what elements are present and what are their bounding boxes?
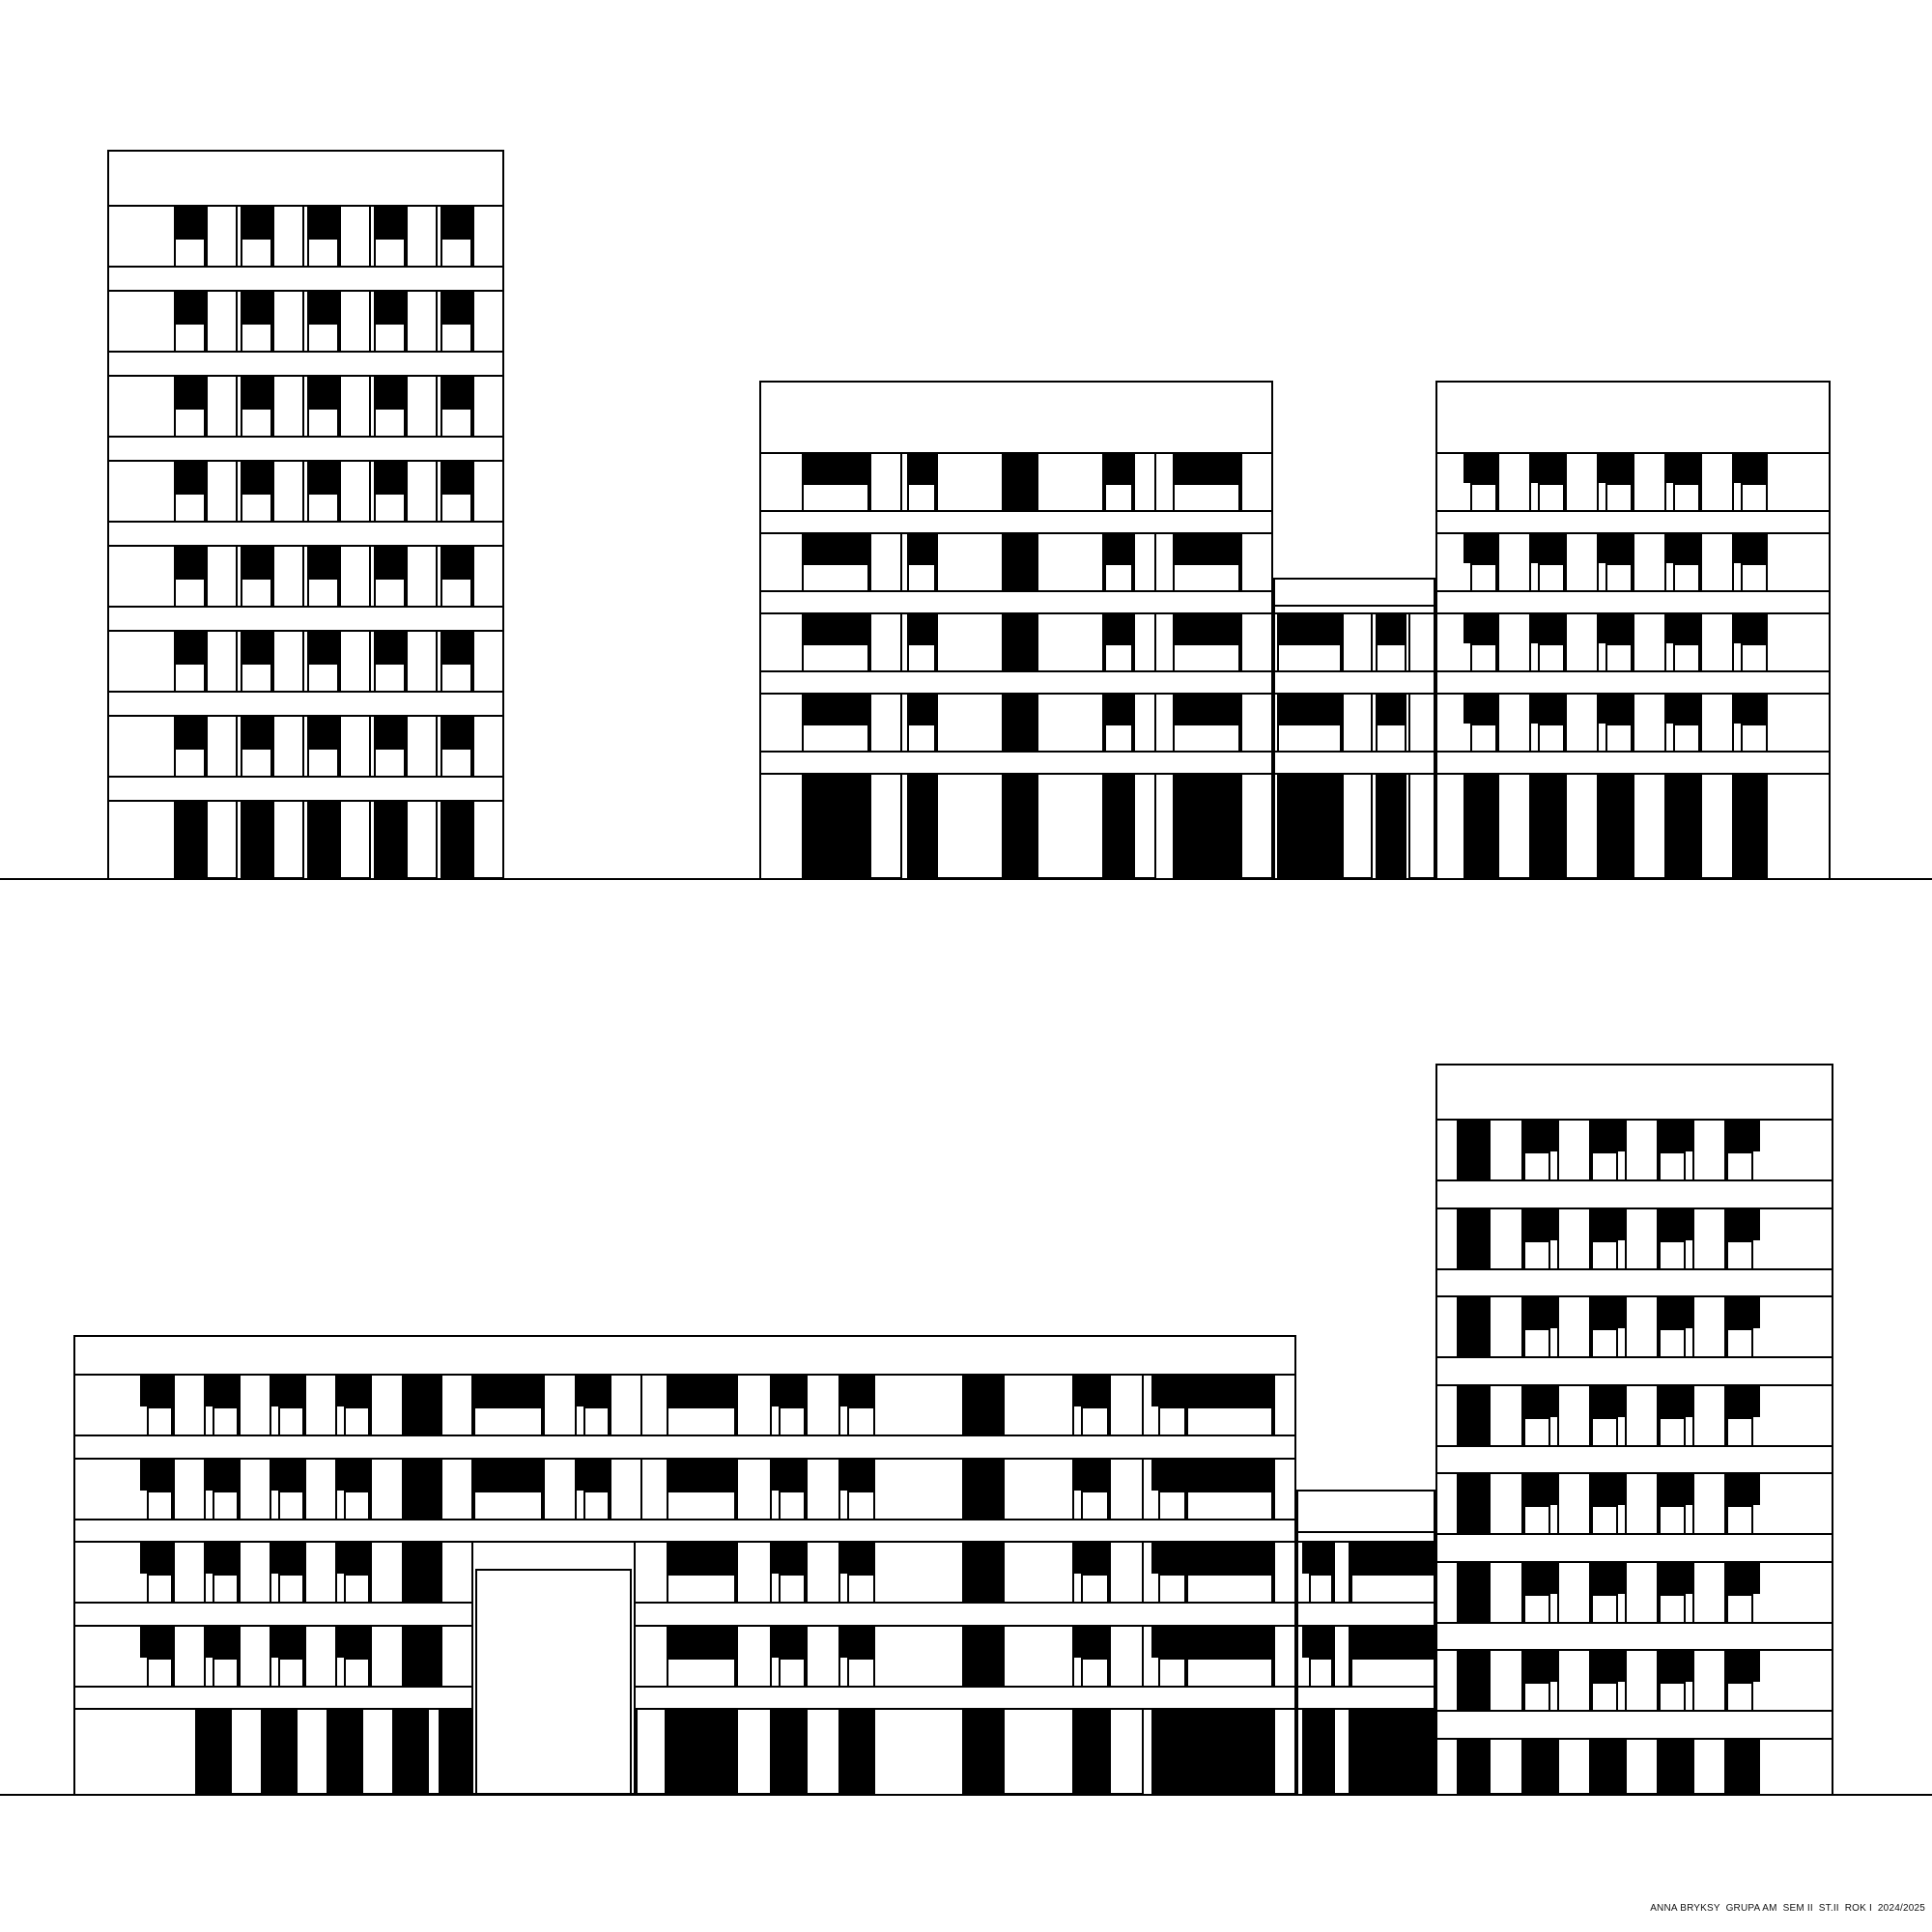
window-pane: [1557, 1472, 1591, 1535]
window-pane: [1109, 1374, 1144, 1436]
ground-floor-dark-opening: [1734, 773, 1768, 879]
window-pane: [610, 1374, 642, 1436]
ground-floor-glazing: [1565, 773, 1599, 879]
upper-middle-block-elevation: [759, 381, 1273, 879]
window-lower-sash: [147, 1574, 173, 1604]
ground-floor-glazing: [1557, 1738, 1591, 1795]
window-lower-sash: [667, 1491, 736, 1520]
ground-floor-dark-opening: [1173, 773, 1240, 879]
window-lower-sash: [1173, 483, 1240, 512]
window-lower-sash: [802, 643, 869, 672]
window-lower-sash: [278, 1574, 304, 1604]
window-open-upper-sash: [1591, 1384, 1625, 1417]
ground-floor-glazing: [1109, 1708, 1144, 1795]
ground-floor-glazing: [1633, 773, 1666, 879]
window-open-upper-sash: [1726, 1295, 1760, 1328]
window-pane: [1625, 1384, 1659, 1447]
window-open-upper-sash: [1151, 1458, 1186, 1491]
window-lower-sash: [1741, 483, 1768, 512]
window-pane: [1692, 1561, 1726, 1624]
window-pane: [1273, 1625, 1296, 1688]
window-pane: [1109, 1541, 1144, 1604]
ground-floor-glazing: [736, 1708, 772, 1795]
window-lower-sash: [241, 408, 272, 438]
window-lower-sash: [1470, 643, 1497, 672]
window-open-upper-sash: [1726, 1384, 1760, 1417]
full-height-dark-strip: [1004, 612, 1037, 672]
ground-floor-dark-opening: [840, 1708, 875, 1795]
window-lower-sash: [847, 1491, 875, 1520]
window-pane: [1133, 612, 1156, 672]
window-open-upper-sash: [1376, 612, 1406, 643]
window-open-upper-sash: [1666, 532, 1700, 563]
window-open-upper-sash: [1659, 1561, 1692, 1594]
window-open-upper-sash: [1531, 532, 1565, 563]
window-open-upper-sash: [772, 1374, 806, 1406]
window-lower-sash: [1741, 724, 1768, 753]
facade-parapet-line: [1296, 1490, 1435, 1492]
window-lower-sash: [344, 1574, 370, 1604]
window-lower-sash: [1376, 643, 1406, 672]
full-height-dark-strip: [962, 1625, 1003, 1688]
facade-left-edge: [1435, 1064, 1437, 1795]
window-lower-sash: [278, 1406, 304, 1436]
window-open-upper-sash: [1659, 1384, 1692, 1417]
window-pane: [406, 545, 438, 608]
window-lower-sash: [1104, 724, 1133, 753]
window-open-upper-sash: [1591, 1119, 1625, 1151]
window-pane: [1037, 452, 1104, 512]
full-height-dark-strip: [1457, 1649, 1489, 1712]
window-pane: [1565, 612, 1599, 672]
window-pane: [272, 545, 304, 608]
window-pane: [1625, 1649, 1659, 1712]
window-lower-sash: [1605, 483, 1633, 512]
window-open-upper-sash: [1666, 452, 1700, 483]
window-pane: [1333, 1541, 1350, 1604]
window-lower-sash: [213, 1491, 239, 1520]
window-lower-sash: [1538, 643, 1565, 672]
window-open-upper-sash: [307, 375, 339, 408]
window-lower-sash: [1376, 724, 1406, 753]
ground-floor-dark-opening: [802, 773, 869, 879]
window-lower-sash: [1186, 1574, 1273, 1604]
facade-right-edge: [1832, 1064, 1833, 1795]
full-height-dark-strip: [404, 1541, 440, 1604]
window-pane: [1565, 693, 1599, 753]
window-open-upper-sash: [1173, 612, 1240, 643]
window-lower-sash: [344, 1658, 370, 1688]
lower-elevation-ground-line: [0, 1794, 1932, 1796]
window-open-upper-sash: [1302, 1541, 1333, 1574]
ground-floor-dark-opening: [1523, 1738, 1557, 1795]
window-pane: [406, 630, 438, 693]
ground-floor-dark-opening: [1531, 773, 1565, 879]
window-pane: [806, 1374, 840, 1436]
window-lower-sash: [374, 663, 406, 693]
ground-floor-dark-opening: [1151, 1708, 1186, 1795]
window-open-upper-sash: [802, 532, 869, 563]
window-open-upper-sash: [1523, 1472, 1557, 1505]
facade-parapet-line: [1435, 1064, 1833, 1065]
window-pane: [869, 693, 902, 753]
window-open-upper-sash: [1523, 1295, 1557, 1328]
window-lower-sash: [1591, 1505, 1618, 1535]
window-pane: [472, 460, 504, 523]
window-pane: [472, 545, 504, 608]
full-height-dark-strip: [1457, 1295, 1489, 1358]
window-lower-sash: [847, 1574, 875, 1604]
window-pane: [339, 375, 371, 438]
window-lower-sash: [1081, 1491, 1109, 1520]
window-lower-sash: [440, 578, 472, 608]
window-open-upper-sash: [1104, 452, 1133, 483]
window-pane: [272, 630, 304, 693]
window-lower-sash: [440, 408, 472, 438]
window-lower-sash: [1186, 1406, 1273, 1436]
ground-floor-glazing: [1240, 773, 1273, 879]
ground-floor-dark-opening: [667, 1708, 736, 1795]
upper-elevation-ground-line: [0, 878, 1932, 880]
window-pane: [1497, 452, 1531, 512]
window-pane: [936, 612, 1004, 672]
window-lower-sash: [1591, 1328, 1618, 1358]
window-open-upper-sash: [374, 205, 406, 238]
window-open-upper-sash: [374, 630, 406, 663]
window-open-upper-sash: [440, 290, 472, 323]
window-open-upper-sash: [1591, 1472, 1625, 1505]
facade-band-line: [1273, 605, 1435, 607]
window-open-upper-sash: [907, 452, 936, 483]
window-pane: [206, 545, 238, 608]
window-open-upper-sash: [337, 1458, 370, 1491]
window-open-upper-sash: [1734, 612, 1768, 643]
window-pane: [339, 715, 371, 778]
window-lower-sash: [1673, 643, 1700, 672]
window-open-upper-sash: [840, 1625, 875, 1658]
window-open-upper-sash: [1173, 532, 1240, 563]
window-lower-sash: [583, 1406, 610, 1436]
window-lower-sash: [1081, 1574, 1109, 1604]
window-pane: [472, 375, 504, 438]
window-open-upper-sash: [1463, 612, 1497, 643]
window-open-upper-sash: [174, 630, 206, 663]
window-open-upper-sash: [1599, 612, 1633, 643]
window-lower-sash: [241, 323, 272, 353]
window-pane: [239, 1458, 271, 1520]
title-block-caption: ANNA BRYKSY GRUPA AM SEM II ST.II ROK I …: [1650, 1903, 1925, 1914]
window-pane: [1557, 1561, 1591, 1624]
window-open-upper-sash: [206, 1541, 239, 1574]
upper-right-block-elevation: [1435, 381, 1831, 879]
window-lower-sash: [241, 748, 272, 778]
ground-floor-dark-opening: [907, 773, 936, 879]
window-lower-sash: [374, 238, 406, 268]
window-lower-sash: [1538, 563, 1565, 592]
window-lower-sash: [213, 1574, 239, 1604]
window-lower-sash: [1186, 1491, 1273, 1520]
window-open-upper-sash: [307, 460, 339, 493]
ground-floor-glazing: [339, 800, 371, 879]
window-lower-sash: [1591, 1417, 1618, 1447]
window-pane: [1133, 693, 1156, 753]
ground-floor-dark-opening: [394, 1708, 427, 1795]
window-lower-sash: [847, 1406, 875, 1436]
window-open-upper-sash: [1173, 452, 1240, 483]
window-pane: [406, 715, 438, 778]
ground-floor-glazing: [1408, 773, 1435, 879]
window-lower-sash: [1309, 1658, 1333, 1688]
window-lower-sash: [1523, 1505, 1550, 1535]
window-open-upper-sash: [440, 205, 472, 238]
window-lower-sash: [1523, 1417, 1550, 1447]
window-pane: [440, 1458, 473, 1520]
ground-floor-dark-opening: [1666, 773, 1700, 879]
window-lower-sash: [374, 578, 406, 608]
facade-parapet-line: [107, 150, 504, 152]
ground-floor-glazing: [1037, 773, 1104, 879]
window-open-upper-sash: [473, 1374, 543, 1406]
window-open-upper-sash: [271, 1625, 304, 1658]
window-lower-sash: [1659, 1328, 1686, 1358]
window-open-upper-sash: [1599, 452, 1633, 483]
window-pane: [1240, 452, 1273, 512]
window-pane: [1633, 532, 1666, 592]
window-open-upper-sash: [907, 532, 936, 563]
window-pane: [440, 1541, 473, 1604]
window-lower-sash: [1350, 1574, 1435, 1604]
window-pane: [370, 1374, 404, 1436]
window-lower-sash: [1659, 1682, 1686, 1712]
facade-parapet-line: [1435, 381, 1831, 383]
window-pane: [206, 460, 238, 523]
window-lower-sash: [779, 1491, 806, 1520]
window-open-upper-sash: [307, 290, 339, 323]
window-pane: [1003, 1374, 1074, 1436]
window-open-upper-sash: [577, 1458, 610, 1491]
ground-floor-glazing: [427, 1708, 440, 1795]
window-pane: [173, 1541, 206, 1604]
window-open-upper-sash: [1734, 452, 1768, 483]
window-open-upper-sash: [337, 1374, 370, 1406]
ground-floor-dark-opening: [1591, 1738, 1625, 1795]
facade-parapet-line: [1273, 578, 1435, 580]
ground-floor-dark-opening: [1659, 1738, 1692, 1795]
upper-left-tower-elevation: [107, 150, 504, 879]
window-pane: [472, 630, 504, 693]
window-open-upper-sash: [241, 630, 272, 663]
full-height-dark-strip: [962, 1541, 1003, 1604]
facade-left-edge: [759, 381, 761, 879]
window-pane: [206, 630, 238, 693]
window-pane: [339, 545, 371, 608]
window-pane: [1497, 693, 1531, 753]
window-pane: [206, 205, 238, 268]
window-lower-sash: [907, 483, 936, 512]
window-open-upper-sash: [1659, 1472, 1692, 1505]
window-pane: [206, 290, 238, 353]
full-height-dark-strip: [1457, 1207, 1489, 1270]
window-open-upper-sash: [440, 375, 472, 408]
window-lower-sash: [440, 323, 472, 353]
window-lower-sash: [1523, 1328, 1550, 1358]
window-pane: [1240, 612, 1273, 672]
window-lower-sash: [907, 563, 936, 592]
window-pane: [1133, 532, 1156, 592]
ground-floor-glazing: [406, 800, 438, 879]
window-open-upper-sash: [772, 1625, 806, 1658]
window-lower-sash: [802, 563, 869, 592]
ground-floor-dark-opening: [328, 1708, 361, 1795]
window-lower-sash: [440, 663, 472, 693]
window-pane: [406, 290, 438, 353]
window-lower-sash: [907, 643, 936, 672]
window-lower-sash: [1741, 643, 1768, 672]
window-pane: [406, 205, 438, 268]
window-pane: [339, 460, 371, 523]
window-open-upper-sash: [1186, 1374, 1273, 1406]
window-pane: [1003, 1541, 1074, 1604]
window-pane: [406, 375, 438, 438]
full-height-dark-strip: [1457, 1561, 1489, 1624]
window-pane: [1625, 1561, 1659, 1624]
window-pane: [1692, 1295, 1726, 1358]
window-open-upper-sash: [1151, 1541, 1186, 1574]
window-lower-sash: [1158, 1491, 1186, 1520]
window-pane: [1342, 612, 1373, 672]
window-lower-sash: [667, 1574, 736, 1604]
window-pane: [1408, 693, 1435, 753]
window-lower-sash: [174, 408, 206, 438]
ground-floor-glazing: [1692, 1738, 1726, 1795]
window-open-upper-sash: [840, 1374, 875, 1406]
window-open-upper-sash: [140, 1625, 173, 1658]
window-pane: [239, 1541, 271, 1604]
window-open-upper-sash: [241, 545, 272, 578]
window-lower-sash: [1659, 1240, 1686, 1270]
window-pane: [339, 630, 371, 693]
window-lower-sash: [1277, 643, 1342, 672]
window-pane: [736, 1541, 772, 1604]
window-lower-sash: [374, 748, 406, 778]
window-open-upper-sash: [1523, 1119, 1557, 1151]
facade-left-edge: [73, 1335, 75, 1795]
window-lower-sash: [1186, 1658, 1273, 1688]
ground-floor-glazing: [636, 1708, 667, 1795]
window-pane: [936, 452, 1004, 512]
window-open-upper-sash: [206, 1625, 239, 1658]
window-pane: [339, 290, 371, 353]
window-pane: [1625, 1295, 1659, 1358]
window-open-upper-sash: [1302, 1625, 1333, 1658]
window-open-upper-sash: [241, 205, 272, 238]
window-pane: [1497, 532, 1531, 592]
ground-floor-glazing: [936, 773, 1004, 879]
window-pane: [1557, 1649, 1591, 1712]
ground-floor-glazing: [272, 800, 304, 879]
window-lower-sash: [1470, 724, 1497, 753]
window-lower-sash: [241, 493, 272, 523]
window-pane: [736, 1458, 772, 1520]
ground-floor-dark-opening: [772, 1708, 806, 1795]
ground-floor-glazing: [296, 1708, 328, 1795]
window-pane: [936, 693, 1004, 753]
ground-floor-dark-opening: [1350, 1708, 1435, 1795]
full-height-dark-strip: [404, 1625, 440, 1688]
window-open-upper-sash: [1659, 1207, 1692, 1240]
window-pane: [1565, 532, 1599, 592]
full-height-dark-strip: [404, 1458, 440, 1520]
window-open-upper-sash: [374, 715, 406, 748]
facade-parapet-line: [759, 381, 1273, 383]
window-open-upper-sash: [1591, 1207, 1625, 1240]
window-pane: [406, 460, 438, 523]
facade-left-edge: [1273, 578, 1275, 879]
ground-floor-glazing: [1342, 773, 1373, 879]
window-open-upper-sash: [1186, 1541, 1273, 1574]
ground-floor-glazing: [1273, 1708, 1296, 1795]
window-open-upper-sash: [307, 715, 339, 748]
window-pane: [1633, 452, 1666, 512]
window-lower-sash: [1726, 1594, 1753, 1624]
window-open-upper-sash: [206, 1458, 239, 1491]
window-open-upper-sash: [337, 1625, 370, 1658]
window-pane: [1037, 532, 1104, 592]
window-lower-sash: [344, 1406, 370, 1436]
window-lower-sash: [1158, 1658, 1186, 1688]
gateway-passage-opening: [475, 1569, 632, 1795]
window-pane: [1273, 1458, 1296, 1520]
window-pane: [1240, 693, 1273, 753]
window-pane: [936, 532, 1004, 592]
window-open-upper-sash: [577, 1374, 610, 1406]
ground-floor-dark-opening: [1104, 773, 1133, 879]
window-lower-sash: [667, 1406, 736, 1436]
ground-floor-dark-opening: [440, 800, 472, 879]
window-open-upper-sash: [241, 290, 272, 323]
window-pane: [1240, 532, 1273, 592]
window-lower-sash: [473, 1406, 543, 1436]
ground-floor-dark-opening: [1302, 1708, 1333, 1795]
window-lower-sash: [802, 724, 869, 753]
ground-floor-glazing: [1133, 773, 1156, 879]
ground-floor-dark-opening: [241, 800, 272, 879]
window-open-upper-sash: [1726, 1207, 1760, 1240]
window-lower-sash: [1173, 643, 1240, 672]
window-pane: [806, 1625, 840, 1688]
window-lower-sash: [213, 1406, 239, 1436]
window-pane: [370, 1541, 404, 1604]
window-lower-sash: [1673, 563, 1700, 592]
full-height-dark-strip: [1457, 1384, 1489, 1447]
window-lower-sash: [1104, 643, 1133, 672]
window-open-upper-sash: [374, 460, 406, 493]
facade-band-line: [1296, 1531, 1435, 1533]
window-pane: [206, 715, 238, 778]
window-lower-sash: [307, 663, 339, 693]
window-open-upper-sash: [1659, 1295, 1692, 1328]
window-lower-sash: [174, 493, 206, 523]
facade-left-edge: [107, 150, 109, 879]
window-lower-sash: [1659, 1594, 1686, 1624]
window-lower-sash: [779, 1406, 806, 1436]
window-lower-sash: [1673, 483, 1700, 512]
window-pane: [1489, 1561, 1523, 1624]
window-lower-sash: [213, 1658, 239, 1688]
window-open-upper-sash: [1531, 452, 1565, 483]
window-open-upper-sash: [174, 375, 206, 408]
window-pane: [1037, 693, 1104, 753]
